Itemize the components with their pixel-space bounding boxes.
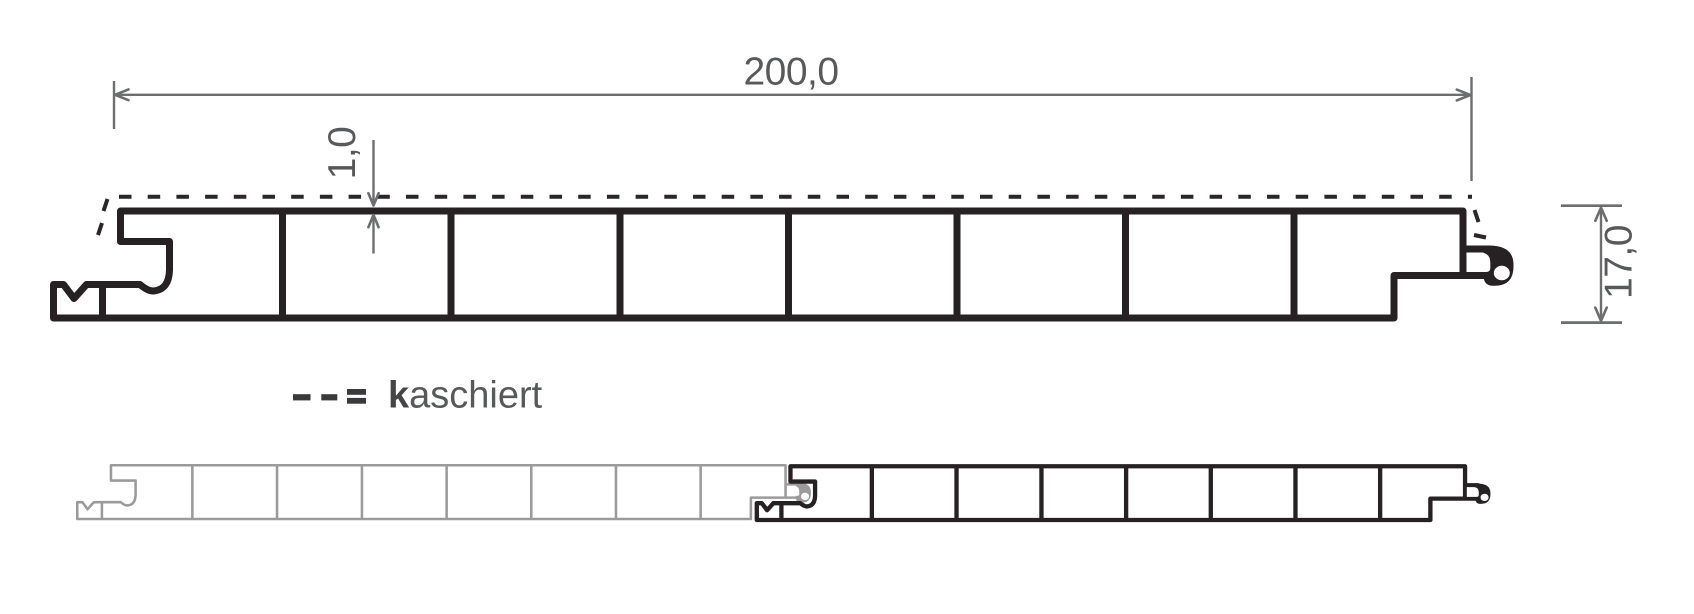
- svg-text:17,0: 17,0: [1598, 225, 1641, 299]
- svg-text:kaschiert: kaschiert: [388, 375, 543, 417]
- svg-text:200,0: 200,0: [743, 51, 838, 94]
- svg-text:1,0: 1,0: [321, 127, 364, 180]
